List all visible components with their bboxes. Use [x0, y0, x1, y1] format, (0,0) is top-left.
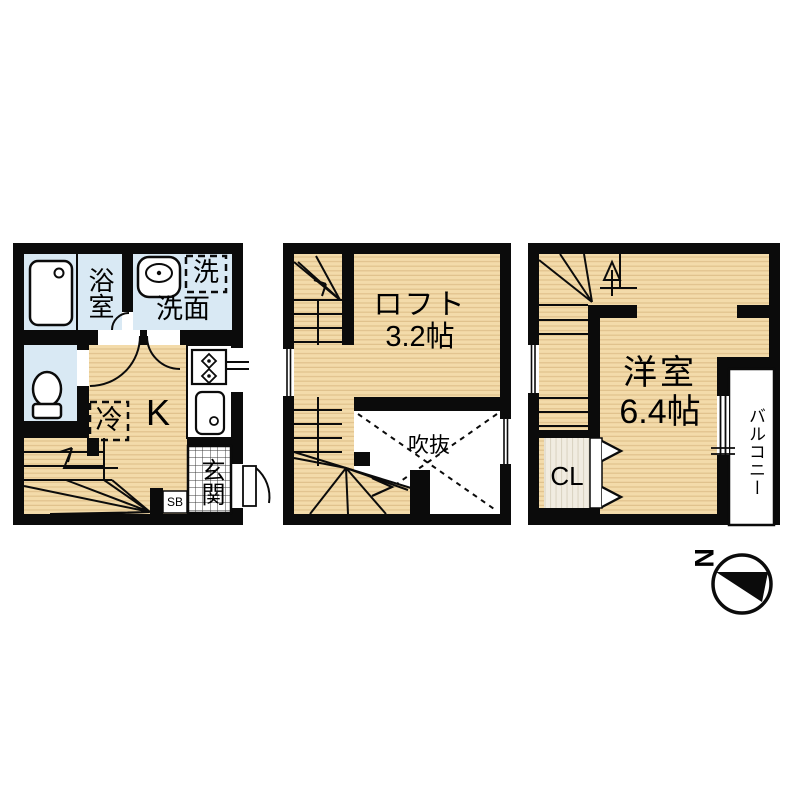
loft-size-label: 3.2帖 [355, 322, 485, 353]
bathtub-icon [30, 261, 72, 325]
western-room-size-label: 6.4帖 [592, 394, 728, 430]
washing-machine-label: 洗 [186, 259, 226, 287]
stove-icon [192, 350, 226, 384]
shoe-box-label: SB [162, 496, 188, 509]
closet-door-strip [590, 438, 602, 508]
washbasin-icon [138, 257, 180, 297]
plan-first-floor [13, 243, 269, 525]
compass [713, 555, 771, 613]
loft-room-label: ロフト [355, 290, 485, 321]
western-room-label: 洋室 [598, 355, 722, 391]
entrance-label: 玄関 [197, 451, 223, 513]
entrance-door-icon [243, 466, 269, 506]
north-label: N [690, 544, 718, 572]
window [283, 349, 294, 396]
floor-plan-image: 浴室 洗 洗面 冷 K 玄関 SB ロフト 3.2帖 吹抜 洋室 6.4帖 CL… [0, 0, 800, 800]
toilet-icon [33, 372, 61, 418]
kitchen-label: K [132, 394, 184, 432]
closet-label: CL [544, 463, 590, 491]
washroom-label: 洗面 [140, 295, 226, 324]
bath-room-label: 浴室 [85, 258, 113, 328]
balcony-label: バルコニー [742, 383, 764, 521]
window [528, 345, 539, 393]
refrigerator-label: 冷 [90, 406, 128, 435]
void-label: 吹抜 [393, 435, 465, 457]
plan-loft [283, 243, 511, 525]
window [500, 419, 511, 464]
kitchen-sink-icon [196, 392, 224, 434]
